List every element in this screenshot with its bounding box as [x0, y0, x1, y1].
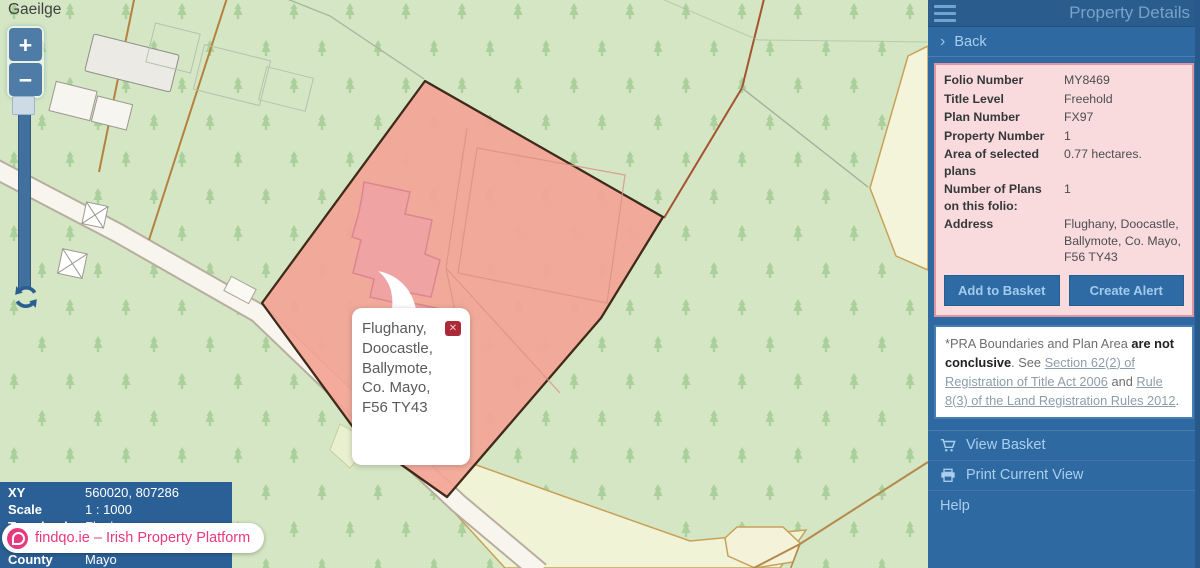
sidebar-menu: View Basket Print Current View Help: [928, 430, 1200, 521]
findqo-badge-text: findqo.ie – Irish Property Platform: [35, 530, 250, 546]
address-popup: Flughany, Doocastle, Ballymote, Co. Mayo…: [352, 308, 470, 465]
zoom-in-button[interactable]: +: [9, 28, 42, 61]
scale-row: Scale 1 : 1000: [8, 502, 228, 517]
disclaimer-text-and: and: [1108, 374, 1136, 389]
view-basket-item[interactable]: View Basket: [928, 431, 1200, 461]
sidebar-header: Property Details: [928, 0, 1200, 27]
county-row: County Mayo: [8, 552, 228, 567]
close-icon[interactable]: ✕: [445, 321, 461, 336]
zoom-control: + −: [7, 26, 44, 98]
zoom-slider-thumb[interactable]: [12, 96, 35, 115]
detail-row-address: Address Flughany, Doocastle, Ballymote, …: [944, 216, 1184, 266]
bubble-tail: [378, 271, 428, 309]
zoom-out-button[interactable]: −: [9, 63, 42, 96]
detail-row-plan-count: Number of Plans on this folio: 1: [944, 181, 1184, 214]
basket-icon: [940, 438, 956, 453]
disclaimer-text-mid: . See: [1011, 355, 1044, 370]
detail-row-title-level: Title Level Freehold: [944, 91, 1184, 108]
print-current-view-item[interactable]: Print Current View: [928, 461, 1200, 491]
detail-row-area: Area of selected plans 0.77 hectares.: [944, 146, 1184, 179]
findqo-badge[interactable]: findqo.ie – Irish Property Platform: [2, 523, 264, 553]
menu-icon[interactable]: [934, 5, 956, 22]
sidebar-title: Property Details: [1069, 3, 1190, 23]
help-label: Help: [940, 498, 970, 514]
detail-row-folio: Folio Number MY8469: [944, 72, 1184, 89]
help-item[interactable]: Help: [928, 491, 1200, 521]
detail-row-plan-number: Plan Number FX97: [944, 109, 1184, 126]
sidebar-scrollbar[interactable]: [1195, 0, 1200, 568]
back-button[interactable]: › Back: [928, 27, 1200, 57]
back-label: Back: [954, 34, 986, 50]
findqo-logo-icon: [7, 528, 28, 549]
zoom-slider-track[interactable]: [18, 113, 31, 289]
detail-actions: Add to Basket Create Alert: [944, 275, 1184, 306]
refresh-icon[interactable]: [12, 284, 40, 312]
xy-row: XY 560020, 807286: [8, 485, 228, 500]
view-basket-label: View Basket: [966, 437, 1046, 453]
boundaries-disclaimer: *PRA Boundaries and Plan Area are not co…: [934, 325, 1194, 419]
folio-details-panel: Folio Number MY8469 Title Level Freehold…: [934, 63, 1194, 317]
detail-row-property-number: Property Number 1: [944, 128, 1184, 145]
language-link[interactable]: Gaeilge: [8, 1, 61, 19]
property-details-sidebar: Property Details › Back Folio Number MY8…: [928, 0, 1200, 568]
create-alert-button[interactable]: Create Alert: [1069, 275, 1185, 306]
add-to-basket-button[interactable]: Add to Basket: [944, 275, 1060, 306]
disclaimer-text-end: .: [1176, 393, 1180, 408]
disclaimer-text: *PRA Boundaries and Plan Area: [945, 336, 1131, 351]
chevron-right-icon: ›: [940, 33, 945, 51]
popup-address-text: Flughany, Doocastle, Ballymote, Co. Mayo…: [362, 319, 433, 418]
print-current-view-label: Print Current View: [966, 467, 1083, 483]
printer-icon: [940, 468, 956, 483]
map[interactable]: Gaeilge + − Flughany, Doocastle, Ballymo…: [0, 0, 928, 568]
